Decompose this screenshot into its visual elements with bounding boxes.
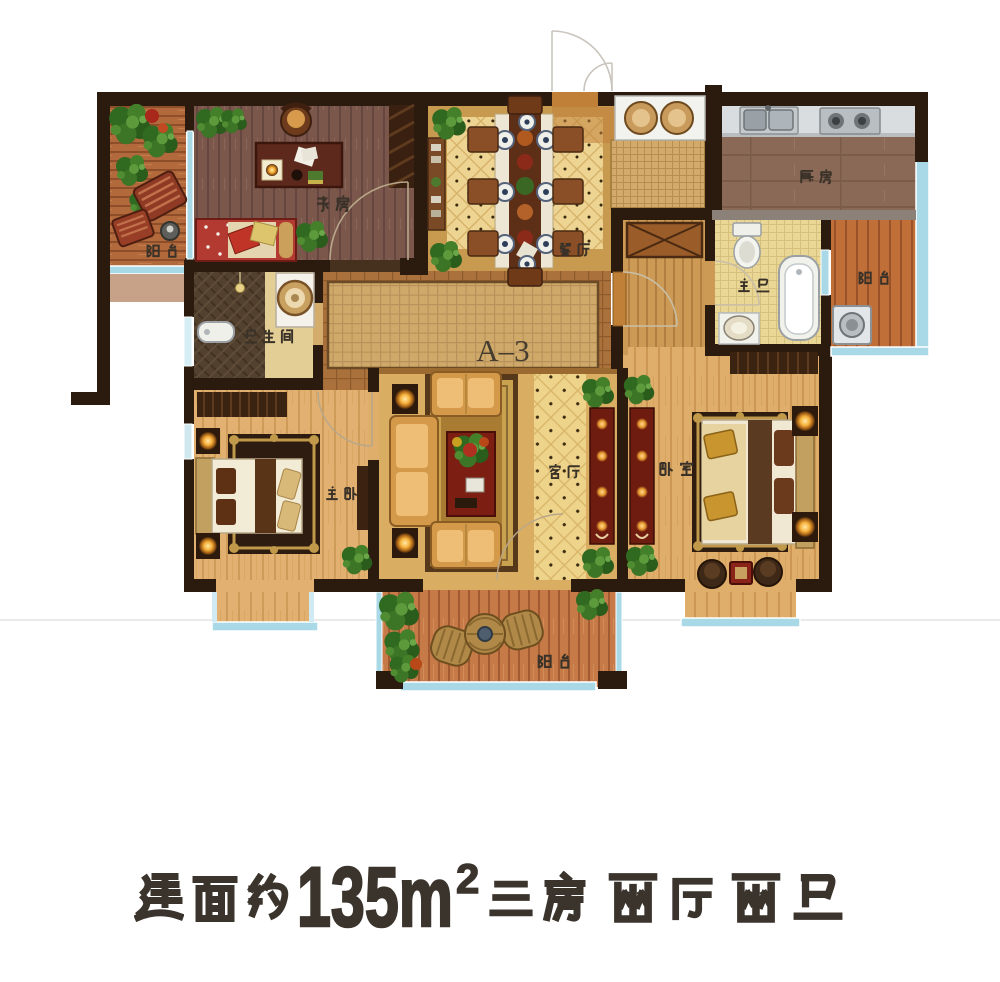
svg-text:A–3: A–3 <box>476 333 529 368</box>
svg-text:2: 2 <box>456 855 479 902</box>
svg-text:135m: 135m <box>297 850 453 944</box>
